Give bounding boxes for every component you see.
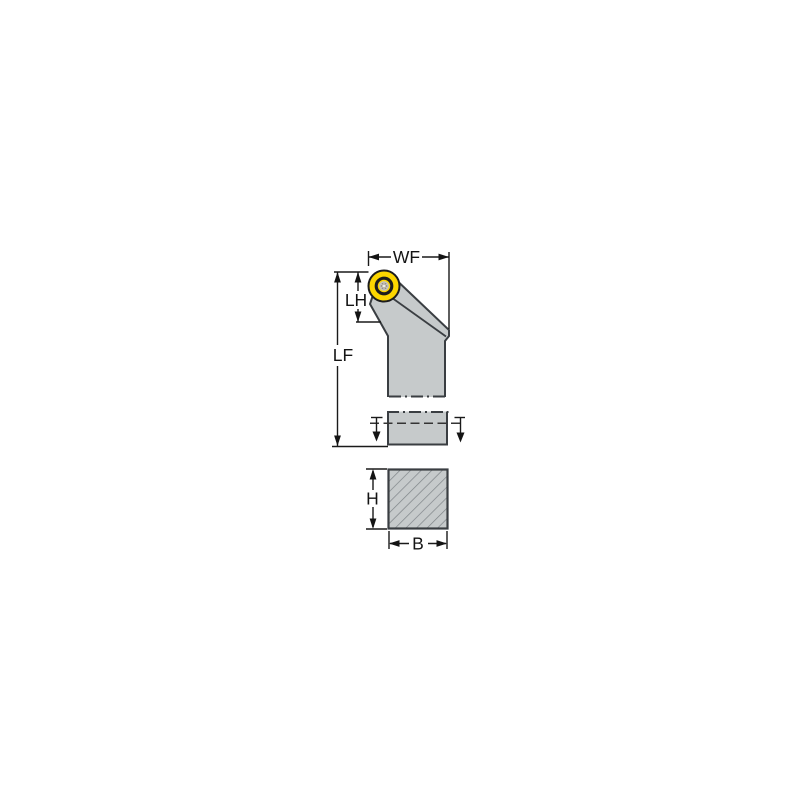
b-arrow-right bbox=[437, 540, 448, 547]
shank-break-section bbox=[387, 412, 449, 445]
left-down-arrow bbox=[371, 418, 383, 442]
lf-arrow-down bbox=[334, 436, 341, 447]
b-arrow-left bbox=[389, 540, 400, 547]
drawing-canvas: WF LF LH H B bbox=[0, 0, 800, 800]
front-view bbox=[369, 271, 450, 398]
wf-label: WF bbox=[393, 247, 420, 267]
b-label: B bbox=[412, 534, 424, 554]
h-arrow-up bbox=[370, 469, 377, 480]
h-arrow-down bbox=[370, 519, 377, 530]
lf-arrow-up bbox=[334, 272, 341, 283]
lh-label: LH bbox=[345, 290, 367, 310]
lh-arrow-down bbox=[355, 312, 362, 323]
h-label: H bbox=[366, 489, 379, 509]
wf-arrow-left bbox=[369, 254, 380, 261]
cross-section-hatch bbox=[389, 470, 448, 529]
toolholder-diagram: WF LF LH H B bbox=[0, 0, 800, 800]
shank-cross-section bbox=[389, 470, 448, 529]
h-dimension: H bbox=[366, 469, 387, 529]
screw-center-dot bbox=[383, 285, 385, 287]
lf-label: LF bbox=[333, 345, 353, 365]
round-insert bbox=[369, 271, 400, 302]
lh-arrow-up bbox=[355, 272, 362, 283]
shank-section-fill bbox=[388, 412, 447, 445]
right-down-arrow bbox=[455, 418, 466, 443]
b-dimension: B bbox=[389, 531, 447, 554]
wf-arrow-right bbox=[439, 254, 450, 261]
